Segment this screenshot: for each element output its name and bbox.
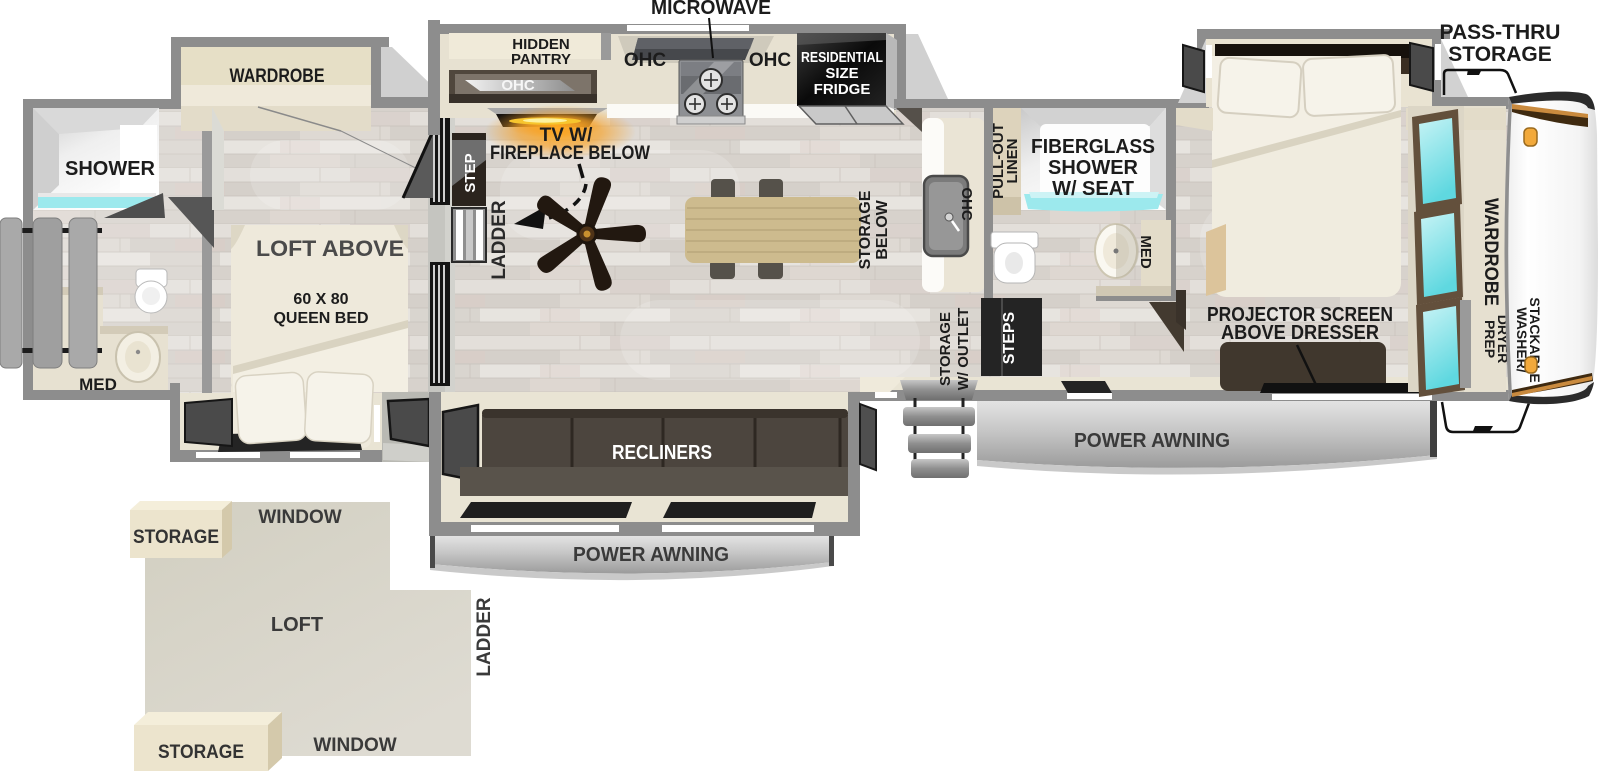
- svg-text:ABOVE DRESSER: ABOVE DRESSER: [1221, 322, 1380, 344]
- svg-text:FIREPLACE BELOW: FIREPLACE BELOW: [490, 143, 650, 164]
- svg-text:OHC: OHC: [749, 50, 792, 71]
- svg-text:MICROWAVE: MICROWAVE: [651, 0, 771, 19]
- svg-text:WINDOW: WINDOW: [258, 507, 341, 528]
- svg-text:STORAGE: STORAGE: [1448, 43, 1551, 66]
- svg-text:SIZE: SIZE: [825, 65, 858, 82]
- svg-text:W/ SEAT: W/ SEAT: [1052, 178, 1134, 200]
- svg-text:LADDER: LADDER: [489, 200, 510, 279]
- svg-text:FIBERGLASS: FIBERGLASS: [1031, 136, 1155, 158]
- svg-text:STORAGE: STORAGE: [857, 190, 874, 269]
- svg-text:LOFT ABOVE: LOFT ABOVE: [256, 236, 404, 261]
- svg-text:RESIDENTIAL: RESIDENTIAL: [801, 49, 883, 66]
- svg-text:PASS-THRU: PASS-THRU: [1440, 21, 1561, 44]
- svg-text:WARDROBE: WARDROBE: [1480, 198, 1501, 306]
- svg-text:W/ OUTLET: W/ OUTLET: [955, 308, 972, 391]
- svg-text:STEPS: STEPS: [1001, 311, 1018, 364]
- svg-text:PANTRY: PANTRY: [511, 51, 571, 68]
- svg-text:WARDROBE: WARDROBE: [230, 66, 325, 87]
- svg-text:BELOW: BELOW: [874, 199, 891, 259]
- svg-text:MED: MED: [1137, 235, 1154, 269]
- svg-text:LOFT: LOFT: [271, 614, 323, 636]
- svg-text:STORAGE: STORAGE: [158, 742, 244, 763]
- svg-text:POWER AWNING: POWER AWNING: [573, 544, 729, 566]
- svg-text:QUEEN BED: QUEEN BED: [273, 310, 368, 327]
- svg-text:STORAGE: STORAGE: [133, 527, 219, 548]
- svg-text:RECLINERS: RECLINERS: [612, 442, 712, 464]
- svg-text:MED: MED: [79, 375, 117, 394]
- svg-text:WINDOW: WINDOW: [313, 735, 396, 756]
- svg-text:FRIDGE: FRIDGE: [814, 81, 871, 98]
- svg-text:OHC: OHC: [624, 50, 667, 71]
- svg-text:STEP: STEP: [462, 153, 479, 192]
- svg-text:PREP: PREP: [1482, 320, 1498, 358]
- svg-text:STORAGE: STORAGE: [937, 312, 954, 386]
- svg-text:LADDER: LADDER: [474, 597, 495, 676]
- svg-text:60 X 80: 60 X 80: [293, 291, 348, 308]
- svg-text:LINEN: LINEN: [1004, 139, 1021, 184]
- svg-text:OHC: OHC: [958, 187, 975, 221]
- svg-text:SHOWER: SHOWER: [1048, 157, 1139, 179]
- svg-text:OHC: OHC: [501, 77, 535, 94]
- svg-text:SHOWER: SHOWER: [65, 158, 156, 180]
- svg-text:POWER AWNING: POWER AWNING: [1074, 430, 1230, 452]
